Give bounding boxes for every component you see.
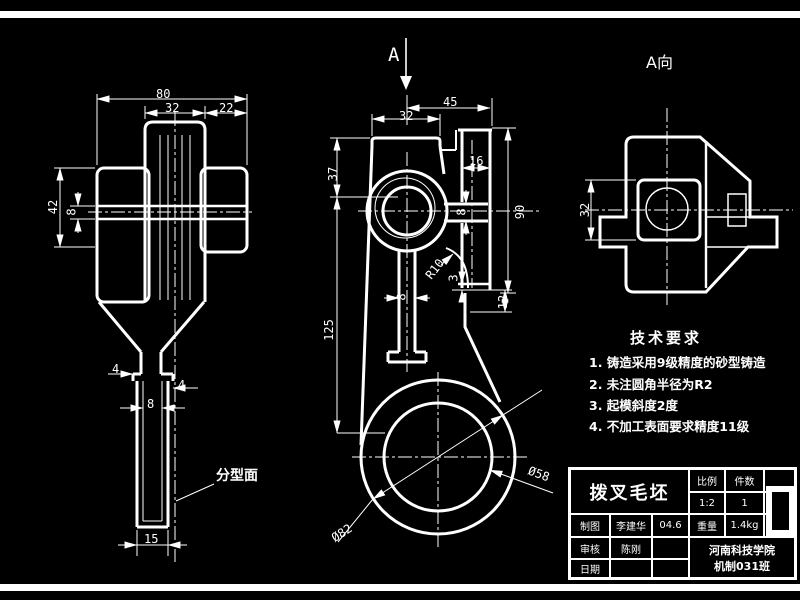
tech-note-2: 2. 未注圆角半径为R2 <box>589 374 713 393</box>
empty-cell <box>652 559 689 578</box>
dim-15: 15 <box>144 533 158 545</box>
dim-90: 90 <box>514 205 526 219</box>
check-label: 审核 <box>570 537 610 559</box>
dim-22: 22 <box>219 102 233 114</box>
dim-80: 80 <box>156 88 170 100</box>
view-a-label: A向 <box>646 55 673 71</box>
section-arrow-label: A <box>388 46 399 65</box>
dim-8-stem: 8 <box>147 398 154 410</box>
title-block: 拨叉毛坯 比例 件数 1:2 1 制图 李建华 04.6 重量 1.4kg 审核… <box>568 467 797 580</box>
dim-8-slot: 8 <box>66 208 78 215</box>
tech-note-3: 3. 起模斜度2度 <box>589 395 678 414</box>
drawn-name: 李建华 <box>610 514 652 537</box>
scale-value: 1:2 <box>689 492 725 514</box>
qty-label: 件数 <box>725 469 764 492</box>
cad-drawing-sheet: 80 32 22 42 8 4 4 8 15 分型面 A 45 32 16 37… <box>0 0 800 600</box>
part-name: 拨叉毛坯 <box>570 469 689 514</box>
empty-cell <box>652 537 689 559</box>
dim-12: 12 <box>497 295 509 309</box>
dim-4-left: 4 <box>112 363 119 375</box>
parting-plane-label: 分型面 <box>216 469 258 483</box>
weight-value: 1.4kg <box>725 514 764 537</box>
date-label: 日期 <box>570 559 610 578</box>
title-block-graphic <box>766 486 795 536</box>
tech-requirements-title: 技术要求 <box>630 331 702 346</box>
tech-note-4: 4. 不加工表面要求精度11级 <box>589 416 749 435</box>
dim-32-a-view: 32 <box>579 203 591 217</box>
dim-37: 37 <box>327 167 339 181</box>
school-cell: 河南科技学院 机制031班 <box>689 537 795 578</box>
dim-8-stem-front: 8 <box>396 293 408 300</box>
scale-label: 比例 <box>689 469 725 492</box>
check-name: 陈刚 <box>610 537 652 559</box>
qty-value: 1 <box>725 492 764 514</box>
dim-125: 125 <box>323 319 335 341</box>
drawn-label: 制图 <box>570 514 610 537</box>
empty-cell <box>610 559 652 578</box>
dim-16: 16 <box>469 155 483 167</box>
dim-32-left-view: 32 <box>165 102 179 114</box>
dim-8-link: 8 <box>456 208 468 215</box>
dim-3: 3 <box>448 274 460 281</box>
dim-32-front-view: 32 <box>399 110 413 122</box>
drawn-date: 04.6 <box>652 514 689 537</box>
dim-45: 45 <box>443 96 457 108</box>
dim-42: 42 <box>47 200 59 214</box>
dim-4-right: 4 <box>178 379 185 391</box>
tech-note-1: 1. 铸造采用9级精度的砂型铸造 <box>589 352 766 371</box>
weight-label: 重量 <box>689 514 725 537</box>
school-name: 河南科技学院 <box>709 542 775 558</box>
class-name: 机制031班 <box>714 558 770 574</box>
